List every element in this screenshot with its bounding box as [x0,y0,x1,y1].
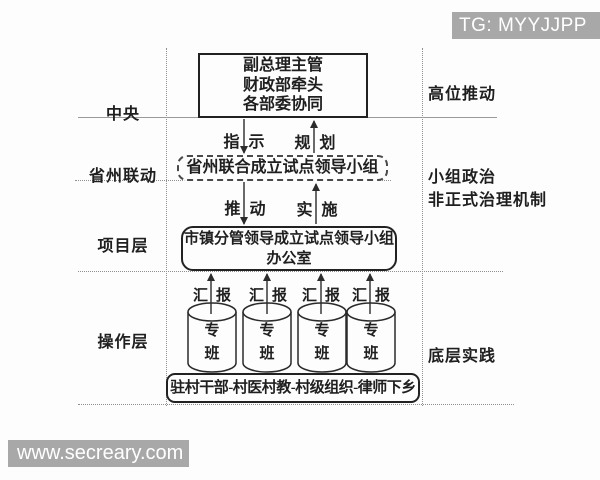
cylinder-1-label: 专 班 [192,320,232,366]
edge-label-plan-char1: 规 [294,129,310,153]
central-line-1: 副总理主管 [200,56,366,76]
diagram-canvas: 中央 省州联动 项目层 操作层 高位推动 小组政治 非正式治理机制 底层实践 副… [0,0,600,480]
level-label-provincial: 省州联动 [88,162,158,186]
edge-label-promote-char1: 推 [224,195,240,219]
edge-label-instruct-char2: 示 [249,128,265,152]
central-line-3: 各部委协同 [200,95,366,115]
edge-label-implement: 实 施 [273,196,361,220]
edge-label-report-1-char1: 汇 [193,284,208,305]
project-line-2: 办公室 [183,249,395,269]
annotation-group-politics: 小组政治 [428,163,538,187]
edge-label-implement-char2: 施 [322,196,338,220]
cylinder-2-label: 专 班 [247,320,287,366]
edge-label-report-3-char1: 汇 [302,284,317,305]
watermark-website: www.secreary.com [8,440,189,467]
level-divider-vertical-right [422,48,423,406]
project-line-1: 市镇分管领导成立试点领导小组 [183,229,395,249]
node-city-town-leading-group-office: 市镇分管领导成立试点领导小组 办公室 [181,226,397,271]
level-label-project: 项目层 [88,232,158,256]
annotation-informal-governance: 非正式治理机制 [428,186,558,210]
node-grassroots-workers: 驻村干部-村医村教-村级组织-律师下乡 [166,373,420,403]
edge-label-report-4-char1: 汇 [352,284,367,305]
level-divider-bottom [78,404,514,405]
level-divider-project [78,271,503,272]
edge-label-report-2-char1: 汇 [249,284,264,305]
edge-label-plan-char2: 划 [320,129,336,153]
level-label-central: 中央 [88,100,158,124]
edge-label-plan: 规 划 [271,129,359,153]
edge-label-promote-char2: 动 [250,195,266,219]
level-divider-vertical-left [166,48,167,406]
annotation-grassroots-practice: 底层实践 [428,342,508,366]
edge-label-report-4: 汇 报 [331,284,411,305]
cylinder-3-label: 专 班 [302,320,342,366]
annotation-high-level-push: 高位推动 [428,80,508,104]
edge-label-implement-char1: 实 [296,196,312,220]
cylinder-4-label: 专 班 [351,320,391,366]
node-central-government: 副总理主管 财政部牵头 各部委协同 [198,53,368,118]
edge-label-instruct-char1: 指 [223,128,239,152]
edge-label-report-4-char2: 报 [375,284,390,305]
node-provincial-leading-group: 省州联合成立试点领导小组 [177,155,388,181]
central-line-2: 财政部牵头 [200,76,366,96]
level-label-operation: 操作层 [88,328,158,352]
watermark-telegram: TG: MYYJJPP [452,12,600,39]
